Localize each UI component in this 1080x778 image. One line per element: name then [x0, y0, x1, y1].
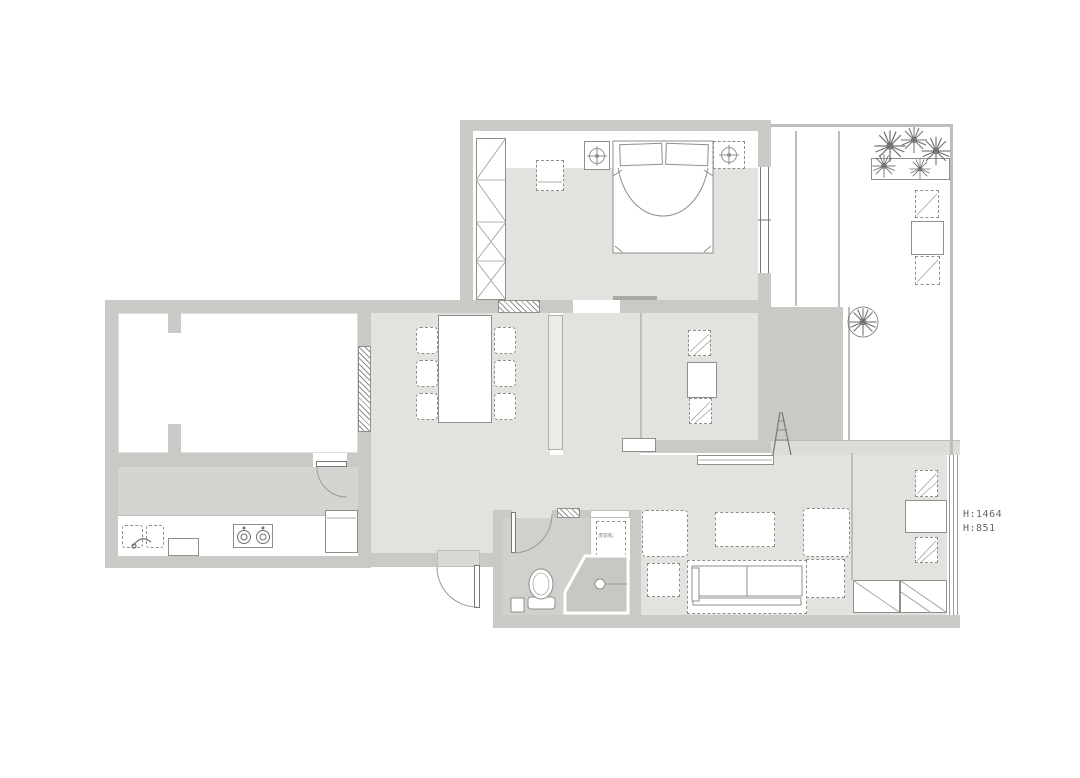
sliding-door-panel — [613, 296, 657, 300]
wall-bedroom-right-upper — [758, 120, 771, 167]
dining-chair-l2 — [416, 360, 438, 387]
side-table-left — [647, 563, 680, 597]
left-room-floor — [118, 313, 358, 453]
storage-hatch-box-1 — [853, 580, 900, 613]
wall-kitchen-bottom — [105, 556, 371, 568]
wardrobe — [476, 138, 506, 300]
study-boundary-line — [640, 313, 642, 440]
wall-stub-lower — [168, 424, 181, 453]
nightstand-left — [584, 141, 610, 170]
bath-nook-window — [590, 510, 630, 518]
nook-chair-bottom — [915, 537, 938, 563]
kitchen-door-leaf — [316, 461, 347, 467]
wall-bedroom-bottom-b — [540, 300, 573, 313]
wall-stub-upper — [168, 313, 181, 333]
coffee-table — [715, 512, 775, 547]
balcony-parapet-top — [771, 124, 953, 127]
kitchen-floor — [118, 467, 358, 515]
balcony-parapet-right — [950, 124, 953, 455]
study-table — [687, 362, 717, 398]
window-wall-right — [947, 455, 960, 615]
counter-cabinet-box — [168, 538, 199, 556]
wall-leftroom-right-upper — [358, 313, 371, 346]
entry-door-arc — [437, 567, 477, 607]
hatched-wall-leftroom — [358, 346, 371, 432]
balcony-table — [911, 221, 944, 255]
balcony-chair-top — [915, 190, 939, 218]
hall-floor — [563, 313, 640, 455]
wall-leftroom-kitchen-a — [118, 453, 313, 467]
fridge — [325, 510, 358, 553]
wall-bath-left-exterior — [493, 510, 503, 628]
armchair-right — [803, 508, 850, 557]
balcony-chair-bottom — [915, 256, 940, 285]
wall-bedroom-bottom-a — [472, 300, 498, 313]
sink-basin-left — [122, 525, 143, 548]
balcony-planter — [871, 158, 950, 180]
wall-bath-top-c — [580, 510, 590, 518]
balcony-deck — [771, 307, 845, 440]
wall-leftroom-right-lower — [358, 432, 371, 556]
balcony-line-1 — [795, 131, 797, 306]
wall-bedroom-bottom-c — [620, 300, 771, 313]
bathroom-door-leaf — [511, 512, 516, 553]
wall-study-bottom — [640, 440, 771, 453]
deck-edge-line — [848, 307, 850, 440]
wall-study-right — [758, 313, 771, 440]
wall-bath-top-a — [495, 510, 512, 518]
study-chair-bottom — [689, 398, 712, 424]
height-annotation-1: H:1464 — [963, 509, 1002, 520]
wall-bath-right — [630, 510, 641, 615]
wall-bedroom-top — [460, 120, 771, 131]
balcony-bottom-strip — [771, 440, 960, 455]
partition-stub-dining — [548, 315, 563, 450]
nook-divider-line — [851, 453, 853, 580]
height-annotation-2: H:851 — [963, 523, 996, 534]
dining-table — [438, 315, 492, 423]
dining-chair-r1 — [494, 327, 516, 354]
washer-label: 洗衣机 — [598, 533, 625, 541]
balcony-line-2 — [838, 131, 840, 307]
armchair-left — [642, 510, 688, 557]
dining-chair-r2 — [494, 360, 516, 387]
dining-chair-l1 — [416, 327, 438, 354]
dining-chair-l3 — [416, 393, 438, 420]
wall-top-left-wing — [105, 300, 472, 313]
stove — [233, 524, 273, 548]
tv-console — [697, 455, 774, 465]
hatched-wall-bath — [557, 508, 580, 518]
study-chair-top — [688, 330, 711, 356]
wall-bottom-main — [495, 615, 960, 628]
storage-hatch-box-2 — [900, 580, 947, 613]
bedroom-door-opening — [573, 300, 620, 313]
entry-door-leaf — [474, 565, 480, 608]
sofa-outline — [687, 560, 807, 614]
bedroom-stool — [536, 160, 564, 191]
hall-end-cabinet — [622, 438, 656, 452]
hatched-wall-bedroom — [498, 300, 540, 313]
dining-chair-r3 — [494, 393, 516, 420]
nook-chair-top — [915, 470, 938, 497]
floor-plan-canvas: H:1464 H:851 洗衣机 — [0, 0, 1080, 778]
wall-left-exterior — [105, 300, 118, 568]
bedroom-balcony-window — [758, 167, 771, 273]
wall-leftroom-kitchen-b — [347, 453, 358, 467]
nook-table — [905, 500, 947, 533]
nightstand-right — [713, 141, 745, 169]
wall-dining-bottom-left — [371, 553, 437, 567]
wall-bedroom-left — [460, 120, 473, 313]
sink-basin-right — [146, 525, 164, 548]
side-table-right — [806, 559, 845, 598]
